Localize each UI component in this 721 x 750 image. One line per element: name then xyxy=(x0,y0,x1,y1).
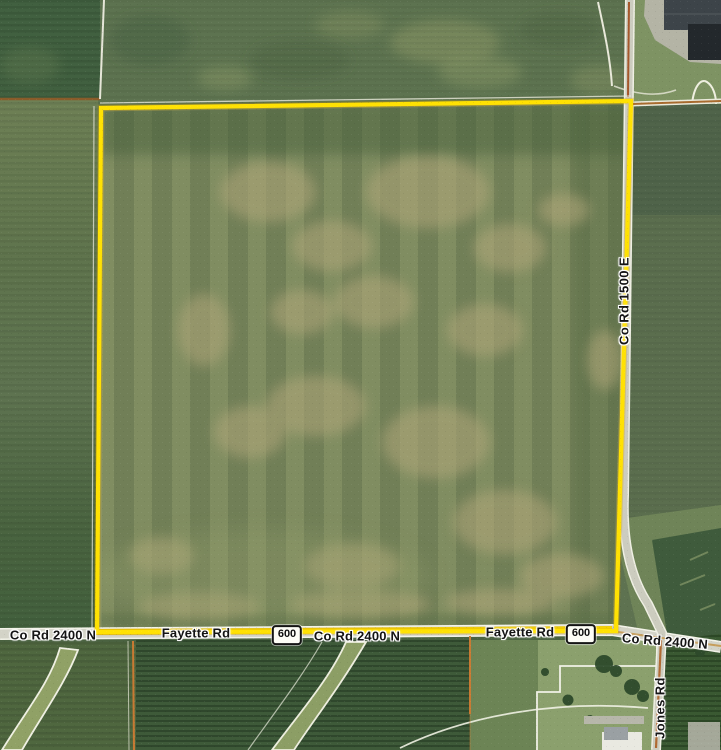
aerial-map: Co Rd 2400 N Fayette Rd Co Rd 2400 N Fay… xyxy=(0,0,721,750)
road-label-co-rd-2400-n-mid: Co Rd 2400 N xyxy=(314,630,400,643)
route-shield-600-left: 600 xyxy=(272,625,302,645)
road-label-fayette-rd-left: Fayette Rd xyxy=(162,627,230,640)
road-label-fayette-rd-right: Fayette Rd xyxy=(486,626,554,639)
road-label-co-rd-1500-e: Co Rd 1500 E xyxy=(618,257,631,345)
road-label-jones-rd: Jones Rd xyxy=(654,677,667,739)
route-shield-600-right: 600 xyxy=(566,624,596,644)
road-label-co-rd-2400-n-left: Co Rd 2400 N xyxy=(10,629,96,642)
